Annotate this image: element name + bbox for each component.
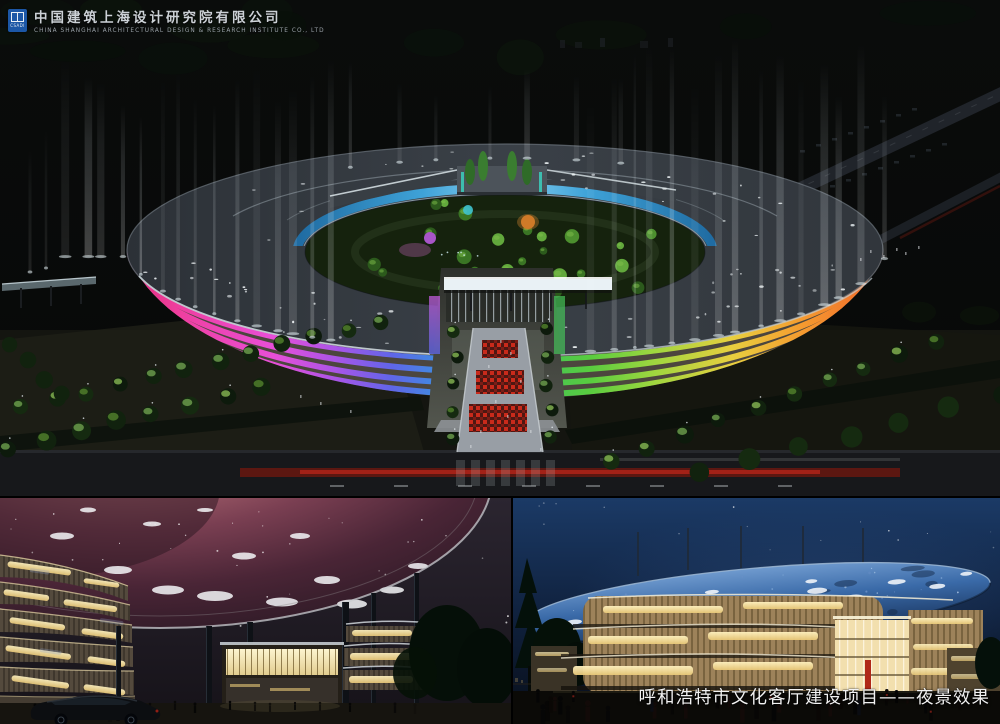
project-caption: 呼和浩特市文化客厅建设项目——夜景效果 bbox=[639, 684, 991, 709]
company-names: 中国建筑上海设计研究院有限公司 CHINA SHANGHAI ARCHITECT… bbox=[34, 6, 325, 34]
glass-atrium bbox=[833, 616, 911, 693]
header-bar: CSADI 中国建筑上海设计研究院有限公司 CHINA SHANGHAI ARC… bbox=[8, 6, 325, 34]
main-aerial-night-render bbox=[0, 0, 1000, 496]
company-logo-icon: CSADI bbox=[8, 9, 27, 32]
company-name-en: CHINA SHANGHAI ARCHITECTURAL DESIGN & RE… bbox=[34, 28, 325, 34]
entry-bridge bbox=[444, 279, 612, 290]
logo-mark bbox=[11, 12, 24, 22]
plaza-nebula-canopy-render bbox=[0, 498, 511, 724]
front-road bbox=[0, 450, 1000, 496]
company-name-cn: 中国建筑上海设计研究院有限公司 bbox=[34, 6, 325, 26]
logo-acronym: CSADI bbox=[10, 24, 24, 28]
glass-hall bbox=[220, 642, 344, 704]
red-paving-2 bbox=[476, 370, 524, 394]
presentation-board: CSADI 中国建筑上海设计研究院有限公司 CHINA SHANGHAI ARC… bbox=[0, 0, 1000, 724]
red-paving-3 bbox=[469, 404, 527, 432]
teal-portal-left bbox=[461, 172, 464, 192]
teal-portal-right bbox=[539, 172, 542, 192]
